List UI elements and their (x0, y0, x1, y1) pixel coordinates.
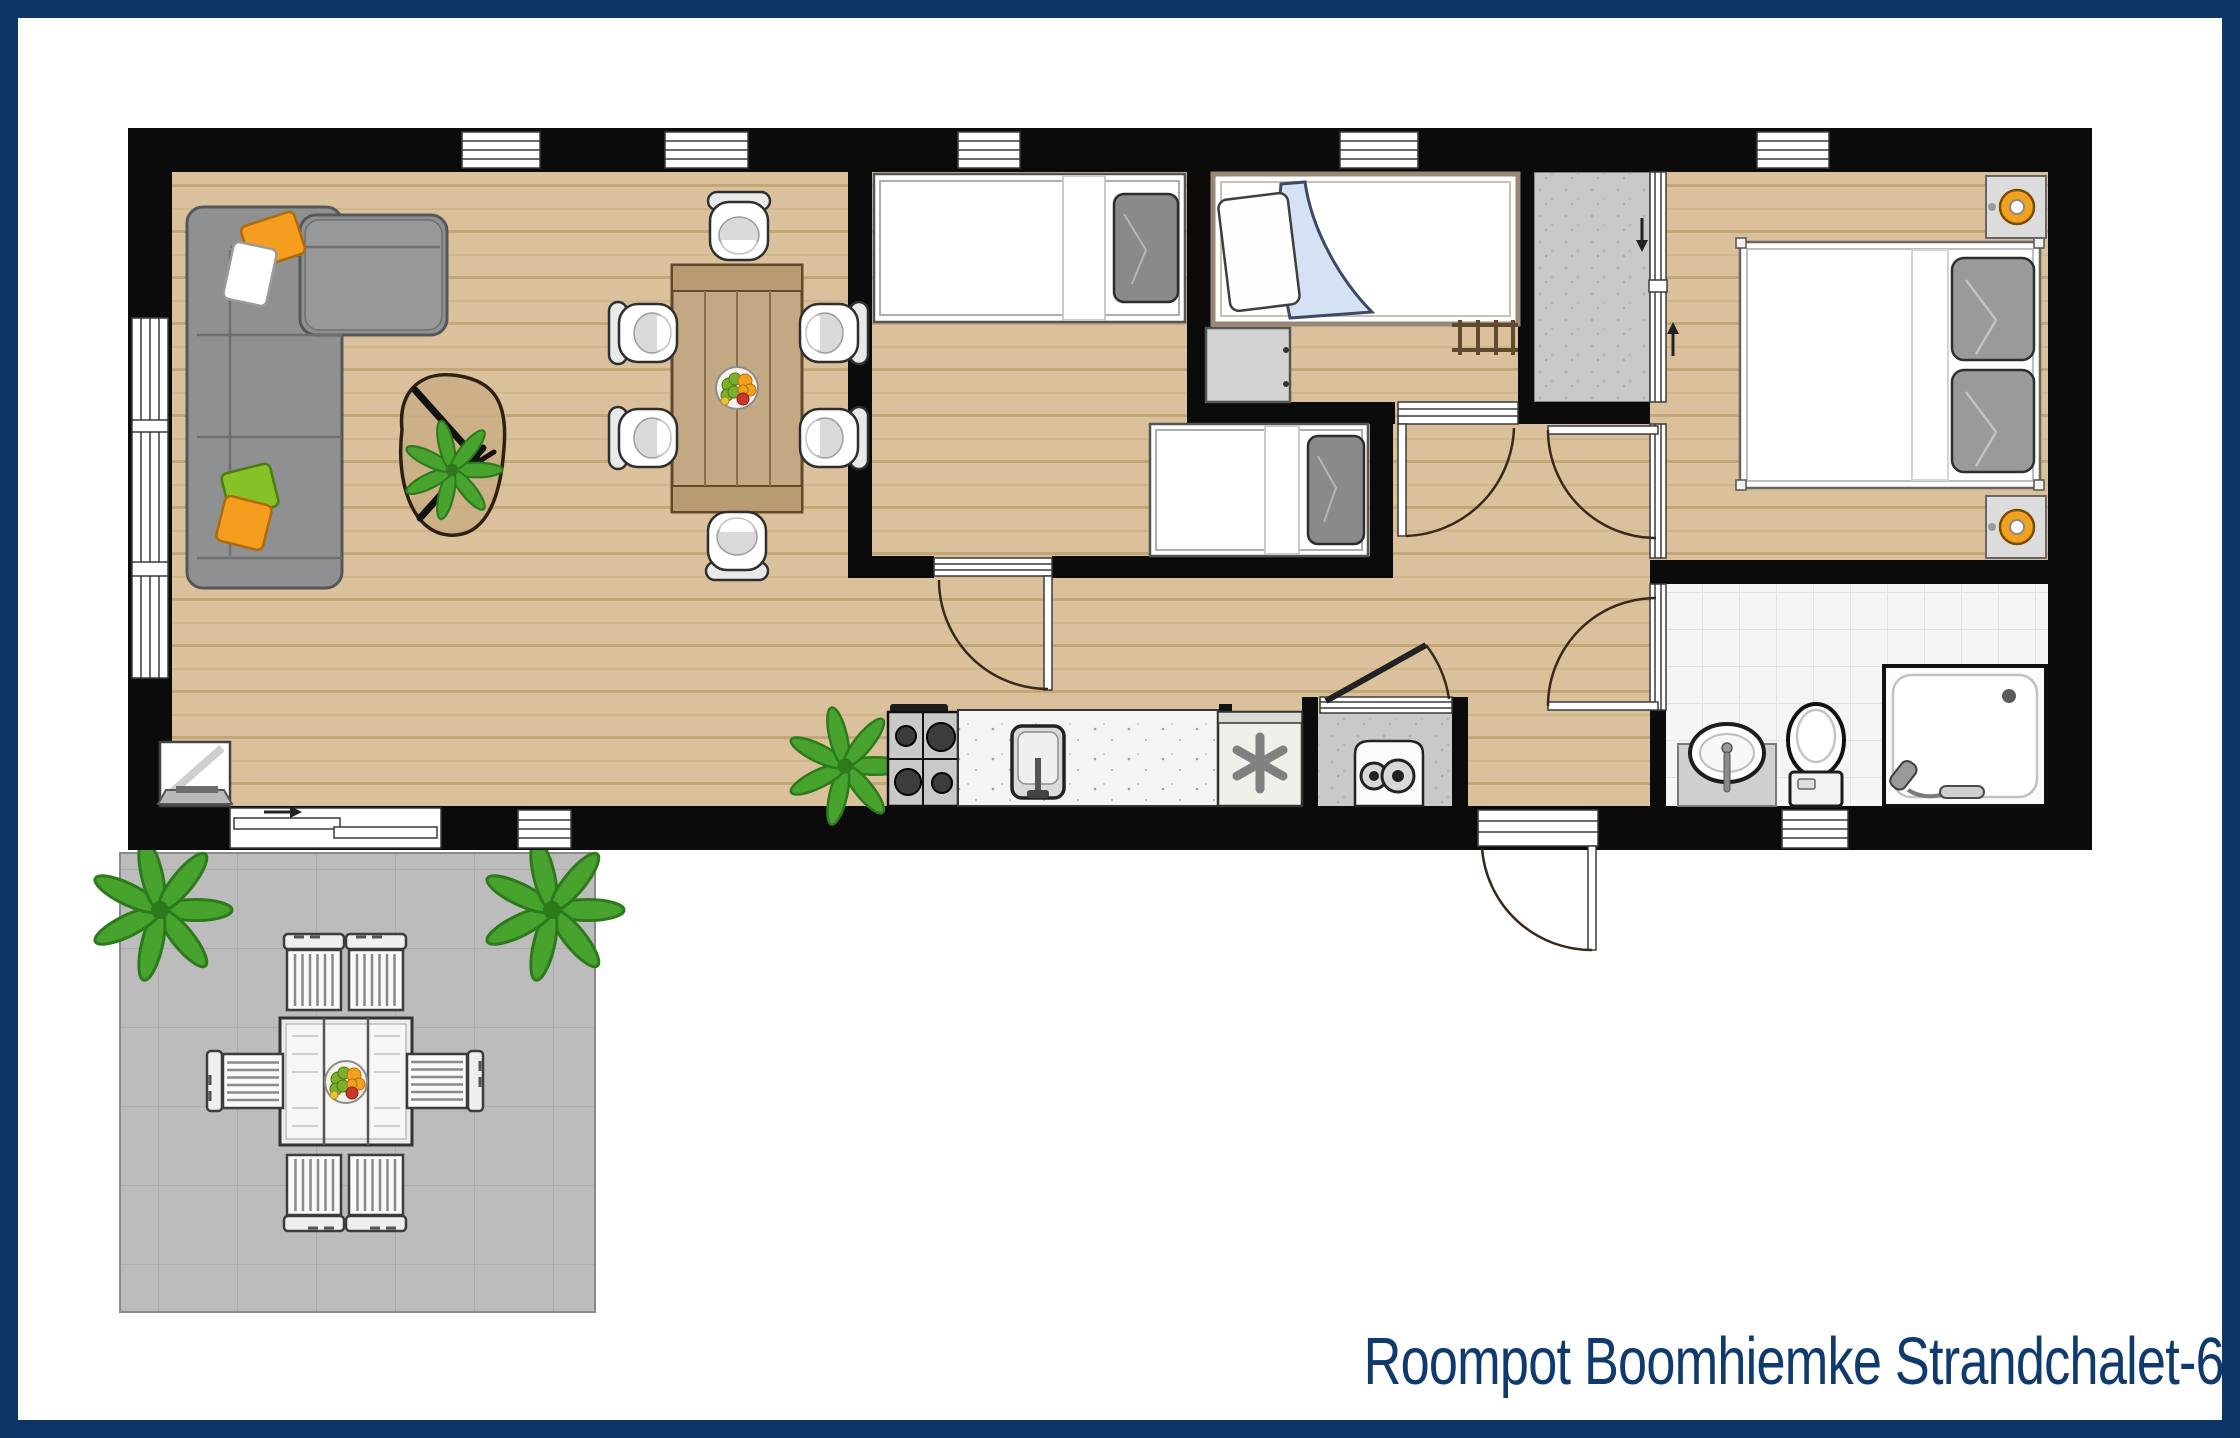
pillow-orange (215, 495, 273, 551)
single-bed (874, 174, 1185, 322)
outdoor-chair (407, 1051, 483, 1111)
window-left-wall (132, 318, 168, 678)
sliding-patio-door (230, 806, 441, 848)
pillow (1952, 258, 2034, 360)
outdoor-chair (207, 1051, 283, 1111)
nightstand (1986, 496, 2046, 558)
dining-chair (800, 302, 868, 364)
coffee-table (401, 375, 505, 535)
double-bed (1736, 238, 2044, 490)
window (518, 810, 571, 848)
window (462, 132, 540, 168)
outdoor-chair (284, 1155, 344, 1231)
plan-title: Roompot Boomhiemke Strandchalet-6 (1364, 1323, 2224, 1400)
boiler (1355, 741, 1423, 806)
outdoor-chair (346, 1155, 406, 1231)
tv (158, 742, 232, 806)
outdoor-chair (346, 934, 406, 1010)
window (1757, 132, 1829, 168)
terrace (91, 837, 624, 1312)
floorplan-page: Roompot Boomhiemke Strandchalet-6 (0, 0, 2240, 1438)
pillow (1114, 194, 1178, 302)
window (958, 132, 1020, 168)
dining-chair (609, 302, 677, 364)
dresser (1206, 328, 1290, 402)
dining-chair (609, 407, 677, 469)
wardrobe-closet (1534, 172, 1650, 402)
toilet (1788, 704, 1844, 806)
freezer (1218, 704, 1302, 806)
window (665, 132, 748, 168)
shower (1884, 666, 2046, 806)
outdoor-table (280, 1018, 412, 1145)
dining-table (672, 265, 802, 512)
kitchen-counter (958, 710, 1218, 806)
dining-chair (706, 512, 768, 580)
nightstand (1986, 176, 2046, 238)
dining-chair (708, 192, 770, 260)
outdoor-chair (284, 934, 344, 1010)
back-door (1478, 810, 1598, 950)
window (1340, 132, 1418, 168)
fruit-bowl-icon (716, 367, 758, 409)
kitchen-sink (1012, 726, 1064, 798)
dining-chair (800, 407, 868, 469)
fruit-bowl-icon (325, 1061, 367, 1103)
pillow (1952, 370, 2034, 472)
gas-hob (888, 704, 958, 806)
bathroom-window (1782, 810, 1848, 848)
drain-icon (2002, 689, 2016, 703)
single-bed-blue-blanket (1213, 174, 1518, 324)
single-bed (1150, 424, 1368, 556)
floorplan-drawing (0, 0, 2240, 1438)
pillow (1217, 192, 1300, 312)
